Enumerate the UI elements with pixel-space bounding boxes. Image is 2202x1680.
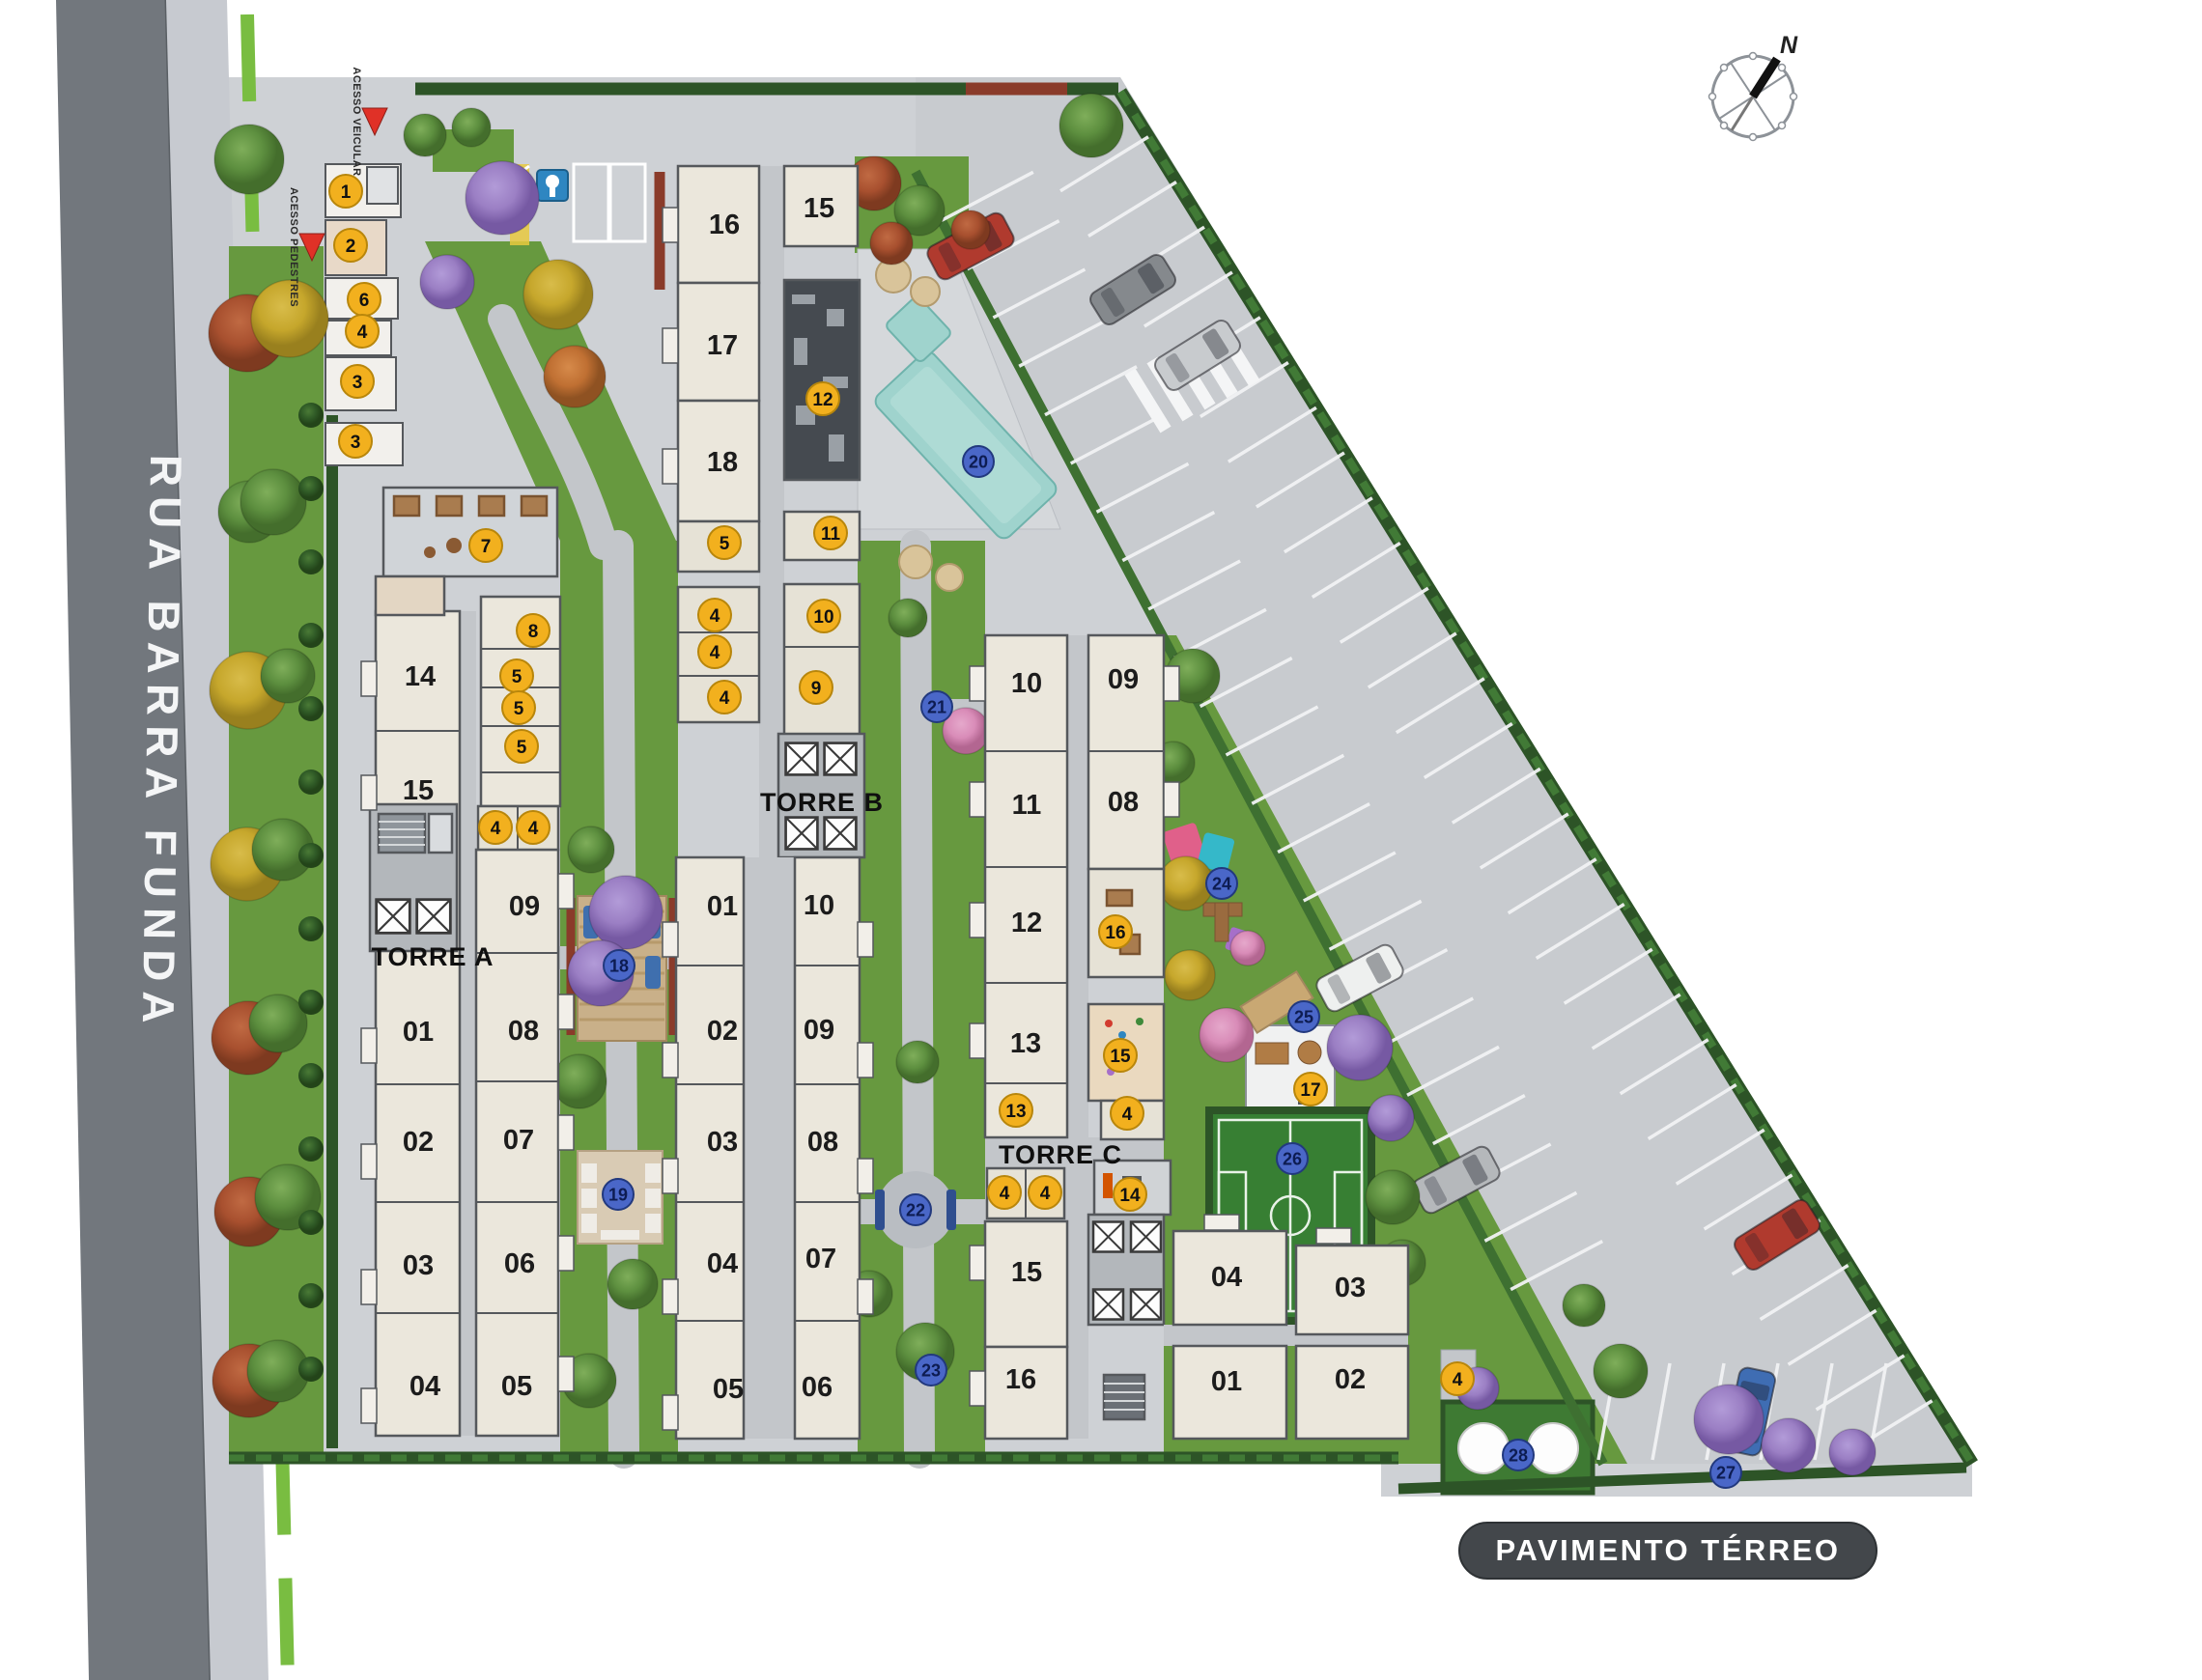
tree — [607, 1259, 658, 1309]
tree — [896, 1041, 939, 1083]
tree — [889, 599, 927, 637]
svg-text:4: 4 — [1122, 1105, 1133, 1125]
unit-torre-c-12: 12 — [1011, 908, 1042, 938]
svg-text:8: 8 — [528, 622, 539, 642]
vehicle-access-label: ACESSO VEICULAR — [351, 67, 362, 176]
unit-torre-a-06: 06 — [504, 1248, 535, 1279]
unit-torre-c-01: 01 — [1211, 1366, 1242, 1397]
svg-text:2: 2 — [346, 237, 356, 257]
bush — [298, 1357, 324, 1382]
tree — [240, 469, 306, 535]
svg-text:13: 13 — [1005, 1102, 1026, 1122]
unit-torre-c-11: 11 — [1012, 790, 1042, 821]
tree — [523, 260, 593, 329]
unit-torre-c-03: 03 — [1335, 1273, 1366, 1303]
street-name: RUA BARRA FUNDA — [133, 454, 191, 1033]
tree — [568, 826, 614, 873]
tree — [870, 222, 913, 265]
svg-text:18: 18 — [609, 957, 629, 976]
marker-yellow-4: 4 — [988, 1176, 1021, 1209]
tree — [1694, 1385, 1764, 1454]
svg-text:21: 21 — [927, 698, 946, 717]
marker-yellow-14: 14 — [1114, 1178, 1146, 1211]
marker-yellow-6: 6 — [348, 283, 381, 316]
tree — [1762, 1418, 1816, 1472]
tree — [1368, 1095, 1414, 1141]
svg-text:5: 5 — [512, 667, 522, 687]
svg-text:14: 14 — [1119, 1186, 1141, 1206]
unit-torre-a-02: 02 — [403, 1127, 434, 1158]
tree — [420, 255, 474, 309]
svg-text:25: 25 — [1294, 1008, 1313, 1027]
unit-torre-a-04: 04 — [409, 1371, 440, 1402]
bush — [298, 476, 324, 501]
unit-torre-b-16: 16 — [709, 210, 740, 240]
unit-torre-c-08: 08 — [1108, 787, 1139, 818]
marker-yellow-7: 7 — [469, 529, 502, 562]
svg-text:11: 11 — [821, 524, 841, 545]
compass: N — [1709, 32, 1798, 141]
unit-torre-b-05: 05 — [713, 1374, 744, 1405]
svg-text:6: 6 — [359, 291, 370, 311]
unit-torre-b-02: 02 — [707, 1016, 738, 1047]
marker-yellow-4: 4 — [698, 635, 731, 668]
torre-b-label: TORRE B — [760, 788, 884, 817]
tree — [589, 876, 663, 949]
plan-title-bar: PAVIMENTO TÉRREO — [1459, 1523, 1877, 1579]
tree — [1059, 94, 1123, 157]
svg-text:28: 28 — [1509, 1446, 1528, 1466]
marker-yellow-4: 4 — [1111, 1097, 1143, 1130]
marker-yellow-4: 4 — [479, 811, 512, 844]
unit-torre-b-04: 04 — [707, 1248, 738, 1279]
unit-torre-b-15: 15 — [804, 193, 834, 224]
unit-torre-c-09: 09 — [1108, 664, 1139, 695]
unit-torre-c-13: 13 — [1010, 1028, 1041, 1059]
svg-text:4: 4 — [491, 819, 501, 839]
svg-text:4: 4 — [1000, 1184, 1010, 1204]
unit-torre-b-09: 09 — [804, 1015, 834, 1046]
svg-text:23: 23 — [921, 1361, 941, 1381]
tree — [1200, 1008, 1254, 1062]
marker-blue-20: 20 — [963, 446, 994, 477]
bush — [298, 843, 324, 868]
marker-yellow-4: 4 — [346, 315, 379, 348]
svg-text:10: 10 — [813, 607, 833, 628]
marker-yellow-12: 12 — [806, 382, 839, 415]
tree — [544, 346, 606, 407]
svg-text:4: 4 — [710, 643, 720, 663]
unit-torre-b-07: 07 — [805, 1244, 836, 1274]
marker-yellow-5: 5 — [505, 730, 538, 763]
torre-c-label: TORRE C — [999, 1140, 1122, 1169]
svg-text:20: 20 — [969, 453, 988, 472]
svg-text:5: 5 — [720, 534, 730, 554]
marker-blue-25: 25 — [1288, 1001, 1319, 1032]
torre-a-label: TORRE A — [371, 942, 494, 971]
svg-text:4: 4 — [1040, 1184, 1051, 1204]
tree — [552, 1054, 607, 1108]
unit-torre-b-06: 06 — [802, 1372, 833, 1403]
svg-text:16: 16 — [1105, 923, 1125, 943]
marker-yellow-3: 3 — [339, 425, 372, 458]
compass-north-label: N — [1780, 32, 1798, 59]
unit-torre-b-03: 03 — [707, 1127, 738, 1158]
marker-yellow-4: 4 — [1029, 1176, 1061, 1209]
marker-yellow-10: 10 — [807, 600, 840, 632]
svg-text:27: 27 — [1716, 1464, 1736, 1483]
tree — [452, 108, 491, 147]
bush — [298, 1063, 324, 1088]
tree — [404, 114, 446, 156]
marker-blue-24: 24 — [1206, 868, 1237, 899]
tree — [261, 649, 315, 703]
site-plan: 1415090108020703060405161517180110020903… — [0, 0, 2202, 1680]
pedestrian-access-label: ACESSO PEDESTRES — [288, 187, 299, 307]
tree — [1327, 1015, 1393, 1080]
marker-blue-21: 21 — [921, 691, 952, 722]
marker-yellow-5: 5 — [500, 659, 533, 692]
unit-torre-a-08: 08 — [508, 1016, 539, 1047]
tree — [214, 125, 284, 194]
tree — [249, 994, 307, 1052]
plan-title: PAVIMENTO TÉRREO — [1496, 1533, 1841, 1567]
bush — [298, 1136, 324, 1162]
marker-blue-19: 19 — [603, 1179, 634, 1210]
marker-yellow-13: 13 — [1000, 1094, 1032, 1127]
tree — [1366, 1170, 1420, 1224]
svg-text:7: 7 — [481, 537, 492, 557]
bush — [298, 549, 324, 574]
svg-text:19: 19 — [608, 1186, 628, 1205]
bush — [298, 1210, 324, 1235]
marker-yellow-17: 17 — [1294, 1073, 1327, 1106]
svg-text:1: 1 — [341, 182, 352, 203]
marker-yellow-4: 4 — [698, 599, 731, 631]
bush — [298, 403, 324, 428]
tree — [1165, 950, 1215, 1000]
marker-yellow-4: 4 — [1441, 1362, 1474, 1395]
marker-blue-26: 26 — [1277, 1143, 1308, 1174]
svg-text:15: 15 — [1110, 1047, 1131, 1067]
bush — [298, 916, 324, 941]
unit-torre-a-15: 15 — [403, 775, 434, 806]
tree — [1594, 1344, 1648, 1398]
svg-text:4: 4 — [720, 688, 730, 709]
marker-yellow-16: 16 — [1099, 915, 1132, 948]
bush — [298, 770, 324, 795]
marker-yellow-5: 5 — [708, 526, 741, 559]
marker-blue-23: 23 — [916, 1355, 946, 1386]
unit-torre-a-05: 05 — [501, 1371, 532, 1402]
bush — [298, 696, 324, 721]
unit-torre-a-14: 14 — [405, 661, 436, 692]
marker-yellow-1: 1 — [329, 175, 362, 208]
marker-yellow-3: 3 — [341, 365, 374, 398]
marker-blue-22: 22 — [900, 1194, 931, 1225]
svg-text:4: 4 — [357, 322, 368, 343]
svg-text:4: 4 — [1453, 1370, 1463, 1390]
unit-torre-b-01: 01 — [707, 891, 738, 922]
unit-torre-b-17: 17 — [707, 330, 738, 361]
svg-text:22: 22 — [906, 1201, 925, 1220]
unit-torre-a-09: 09 — [509, 891, 540, 922]
parking-sign-icon — [537, 170, 568, 201]
svg-text:12: 12 — [812, 390, 833, 410]
unit-torre-a-03: 03 — [403, 1250, 434, 1281]
unit-torre-c-10: 10 — [1011, 668, 1042, 699]
svg-text:3: 3 — [351, 433, 361, 453]
bush — [298, 623, 324, 648]
marker-blue-18: 18 — [604, 950, 635, 981]
svg-text:4: 4 — [528, 819, 539, 839]
unit-torre-b-08: 08 — [807, 1127, 838, 1158]
unit-torre-c-02: 02 — [1335, 1364, 1366, 1395]
svg-text:5: 5 — [514, 699, 524, 719]
marker-yellow-9: 9 — [800, 671, 833, 704]
marker-blue-27: 27 — [1710, 1457, 1741, 1488]
tree — [1563, 1284, 1605, 1327]
unit-torre-b-10: 10 — [804, 890, 834, 921]
unit-torre-c-15: 15 — [1011, 1257, 1042, 1288]
svg-text:17: 17 — [1300, 1080, 1320, 1101]
tree — [466, 161, 539, 235]
tree — [951, 210, 990, 249]
marker-yellow-11: 11 — [814, 517, 847, 549]
marker-yellow-2: 2 — [334, 229, 367, 262]
bush — [298, 990, 324, 1015]
tree — [1829, 1429, 1876, 1475]
marker-yellow-15: 15 — [1104, 1039, 1137, 1072]
unit-torre-c-16: 16 — [1005, 1364, 1036, 1395]
unit-torre-c-04: 04 — [1211, 1262, 1242, 1293]
unit-torre-b-18: 18 — [707, 447, 738, 478]
svg-text:4: 4 — [710, 606, 720, 627]
marker-yellow-5: 5 — [502, 691, 535, 724]
svg-text:9: 9 — [811, 679, 822, 699]
unit-torre-a-01: 01 — [403, 1017, 434, 1048]
svg-text:3: 3 — [353, 373, 363, 393]
marker-yellow-4: 4 — [517, 811, 550, 844]
unit-torre-a-07: 07 — [503, 1125, 534, 1156]
svg-text:5: 5 — [517, 738, 527, 758]
svg-text:24: 24 — [1212, 875, 1231, 894]
tree — [1159, 856, 1213, 910]
tree — [1230, 931, 1265, 966]
marker-yellow-4: 4 — [708, 681, 741, 714]
bush — [298, 1283, 324, 1308]
marker-blue-28: 28 — [1503, 1440, 1534, 1470]
svg-text:26: 26 — [1283, 1150, 1302, 1169]
marker-yellow-8: 8 — [517, 614, 550, 647]
